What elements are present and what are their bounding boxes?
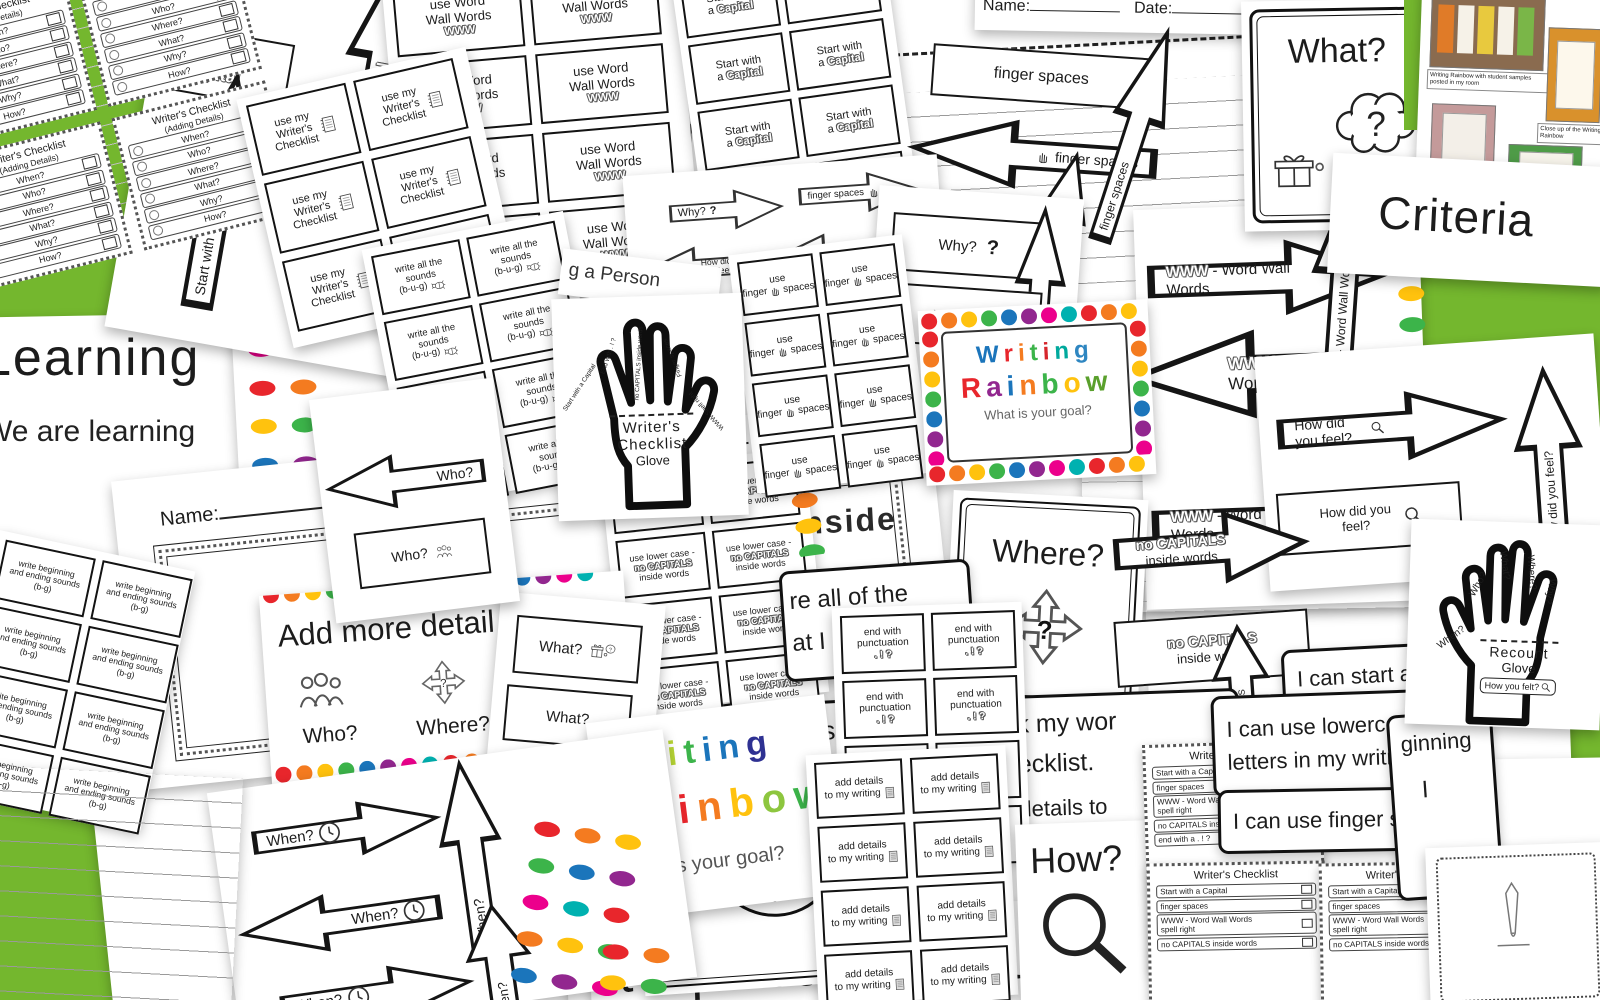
checkbox (226, 34, 242, 48)
place-icon (104, 32, 116, 44)
clock-icon (96, 0, 108, 12)
hand-icon (851, 274, 864, 286)
bug-icon (442, 344, 460, 357)
end-punctuation-card: end withpunctuation. ! ? (840, 613, 926, 674)
checkbox (65, 92, 81, 106)
checkbox (1302, 937, 1313, 946)
family-icon (294, 668, 349, 712)
my-checklist-card: use myWriter'sChecklist (353, 58, 469, 151)
use-finger-spaces-cards-sheet: usefingerspaces usefingerspaces usefinge… (728, 234, 931, 494)
bug-icon (525, 260, 543, 273)
gift-icon (108, 48, 120, 60)
notebook-icon (983, 845, 995, 859)
my-checklist-card: use myWriter'sChecklist (246, 83, 362, 176)
hand-icon (873, 456, 886, 468)
magnifier-icon (1541, 682, 1551, 692)
notebook-icon (336, 192, 354, 212)
clock-icon (345, 984, 372, 1000)
writers-checklist-glove-sheet: Start with a Capital End with . ! ? no C… (551, 293, 749, 521)
criteria-title: Criteria (1377, 185, 1536, 247)
svg-text:?: ? (1036, 615, 1053, 646)
glove-finger-label: Where? (1525, 555, 1538, 591)
people-icon (136, 161, 148, 173)
clock-icon (316, 819, 343, 846)
my-checklist-card: use myWriter'sChecklist (371, 136, 487, 229)
small-writers-checklist-card: Writer's Checklist Start with a Capital … (1147, 860, 1328, 1000)
use-finger-spaces-card: usefingerspaces (834, 364, 916, 427)
gift-thought-icon: ? (589, 641, 616, 661)
checkbox (89, 188, 105, 202)
checkbox (49, 28, 65, 42)
checkbox (1301, 885, 1312, 894)
no-capitals-arrow: no CAPITALSinside words (1108, 500, 1313, 596)
start-capital-card: Start witha Capital (789, 18, 891, 91)
what-box: What?? (512, 615, 643, 684)
how-title: How? (1029, 837, 1122, 882)
checkbox (230, 50, 246, 64)
notebook-icon (425, 89, 443, 109)
write-sounds-card: write all thesounds(b-u-g) (384, 305, 484, 381)
use-finger-spaces-card: usefingerspaces (737, 253, 819, 316)
notebook-icon (893, 978, 905, 992)
hand-icon (784, 406, 797, 418)
notebook-icon (887, 850, 899, 864)
classroom-photo (1429, 0, 1545, 71)
worksheet-collage: Learning We are learning Name: Date: wri… (0, 0, 1600, 1000)
notebook-icon (989, 973, 1001, 987)
name-label: Name: (983, 0, 1030, 15)
dot-border-right (1129, 320, 1152, 455)
checkbox (101, 236, 117, 250)
lined-paper (0, 765, 243, 1000)
who-arrows-sheet: Who? Who? (309, 378, 520, 624)
question-icon (148, 209, 160, 221)
word-wall-card: use WordWall WordsWWW (528, 0, 662, 45)
magnifier-icon (152, 225, 164, 237)
add-details-card: add detailsto my writing (913, 817, 1004, 878)
add-details-card: add detailsto my writing (817, 822, 908, 883)
bug-icon (430, 278, 448, 291)
checkbox (1301, 899, 1312, 908)
hand-icon (866, 395, 879, 407)
name-label: Name: (159, 503, 220, 531)
gift-icon (1272, 148, 1331, 193)
checkbox (97, 220, 113, 234)
add-details-card: add detailsto my writing (910, 753, 1001, 814)
magnifier-icon (116, 80, 128, 92)
recount-glove-sheet: When? Who? What? Where? Why? Recount Glo… (1404, 519, 1600, 731)
use-finger-spaces-card: usefingerspaces (819, 243, 901, 306)
checkbox (93, 204, 109, 218)
pencil-sketch-icon (1481, 874, 1544, 956)
end-punctuation-card: end withpunctuation. ! ? (842, 678, 928, 739)
start-capital-card: Start witha Capital (798, 84, 900, 157)
start-capital-card: Start witha Capital (679, 0, 781, 39)
question-icon (112, 64, 124, 76)
word-wall-card: use WordWall WordsWWW (535, 43, 669, 124)
use-finger-spaces-card: usefingerspaces (827, 304, 909, 367)
svg-text:?: ? (1366, 105, 1386, 144)
add-details-card: add detailsto my writing (824, 950, 915, 1000)
checkbox (214, 0, 230, 1)
direction-cross-icon: ? (419, 658, 468, 707)
svg-text:?: ? (440, 678, 447, 690)
lower-case-card: use lower case -no CAPITALSinside words (615, 532, 711, 599)
start-capital-card: Start witha Capital (697, 99, 799, 172)
use-finger-spaces-card: usefingerspaces (842, 425, 924, 488)
end-punctuation-card: end withpunctuation. ! ? (931, 610, 1017, 671)
notebook-icon (890, 914, 902, 928)
notebook-icon (986, 909, 998, 923)
add-details-cards-sheet: add detailsto my writing add detailsto m… (806, 745, 1019, 1000)
why-arrow: Why?? (666, 183, 787, 237)
write-beginning-card: write beginningand ending sounds(b-g) (90, 560, 192, 638)
notebook-icon (318, 114, 336, 134)
people-icon (100, 16, 112, 28)
write-beginning-card: write beginningand ending sounds(b-g) (0, 605, 82, 683)
learning-subtitle: We are learning (0, 415, 195, 449)
write-sounds-card: write all thesounds(b-u-g) (466, 221, 566, 297)
checkbox (61, 76, 77, 90)
use-finger-spaces-card: usefingerspaces (744, 314, 826, 377)
photo-caption: Writing Rainbow with student samples pos… (1427, 69, 1552, 94)
writers-checklist-adding-card: Writer's Checklist (Adding Details) When… (0, 121, 133, 292)
checkbox (218, 2, 234, 16)
hand-icon (791, 466, 804, 478)
gift-icon (144, 193, 156, 205)
write-beginning-card: write beginningand ending sounds(b-g) (0, 540, 96, 618)
add-details-card: add detailsto my writing (814, 758, 905, 819)
write-sounds-card: write all thesounds(b-u-g) (371, 239, 471, 315)
criteria-sheet: Criteria (1327, 153, 1600, 287)
where-label: Where? (416, 712, 491, 741)
when-right-arrow: When? (245, 786, 447, 875)
date-label: Date: (1134, 0, 1173, 17)
write-beginning-card: write beginningand ending sounds(b-g) (76, 626, 178, 704)
checkbox (85, 172, 101, 186)
end-punctuation-card: end withpunctuation. ! ? (933, 675, 1019, 736)
glove-palm-text: Writer's Checklist Glove (601, 412, 703, 469)
write-beginning-card: write beginningand ending sounds(b-g) (62, 691, 164, 769)
use-finger-spaces-card: usefingerspaces (752, 374, 834, 437)
svg-text:?: ? (608, 647, 612, 653)
notebook-icon (979, 781, 991, 795)
notebook-icon (883, 786, 895, 800)
start-capital-card: Start witha Capital (688, 32, 790, 105)
add-details-card: add detailsto my writing (917, 881, 1008, 942)
classroom-photo (1546, 27, 1600, 123)
hand-icon (859, 335, 872, 347)
checkbox (53, 44, 69, 58)
glove-outline (559, 299, 741, 515)
magnifier-icon (1035, 885, 1133, 983)
photo-caption: Close up of the Writing Rainbow (1537, 123, 1600, 146)
notebook-icon (443, 167, 461, 187)
glove-palm-text: Recount Glove How you felt? (1468, 639, 1570, 696)
who-left-arrow: Who? (320, 439, 491, 521)
place-icon (140, 177, 152, 189)
checkbox (81, 156, 97, 170)
checkbox (1302, 918, 1313, 927)
polka-dot-strip (594, 940, 694, 1000)
magnifier-icon (1370, 416, 1386, 439)
clock-icon (401, 897, 428, 924)
hand-icon (776, 345, 789, 357)
checkbox (57, 60, 73, 74)
hand-icon (769, 284, 782, 296)
people-icon (435, 543, 454, 558)
checkbox (222, 18, 238, 32)
write-beginning-card: write beginningand ending sounds(b-g) (0, 671, 68, 749)
add-details-card: add detailsto my writing (920, 945, 1011, 1000)
who-label: Who? (302, 721, 358, 749)
checkbox (46, 12, 62, 26)
when-left-arrow: When? (232, 874, 449, 969)
who-box: Who? (354, 518, 492, 590)
clock-icon (132, 145, 144, 157)
how-you-felt-box: How you felt? (1479, 677, 1556, 696)
use-finger-spaces-card: usefingerspaces (759, 435, 841, 498)
writing-rainbow-poster: Writing Rainbow What is your goal? (918, 299, 1157, 486)
writing-rainbow-title-2: Rainbow (945, 364, 1128, 405)
my-checklist-card: use myWriter'sChecklist (264, 161, 380, 254)
framed-drawing-card (1425, 842, 1600, 1000)
add-details-card: add detailsto my writing (821, 886, 912, 947)
